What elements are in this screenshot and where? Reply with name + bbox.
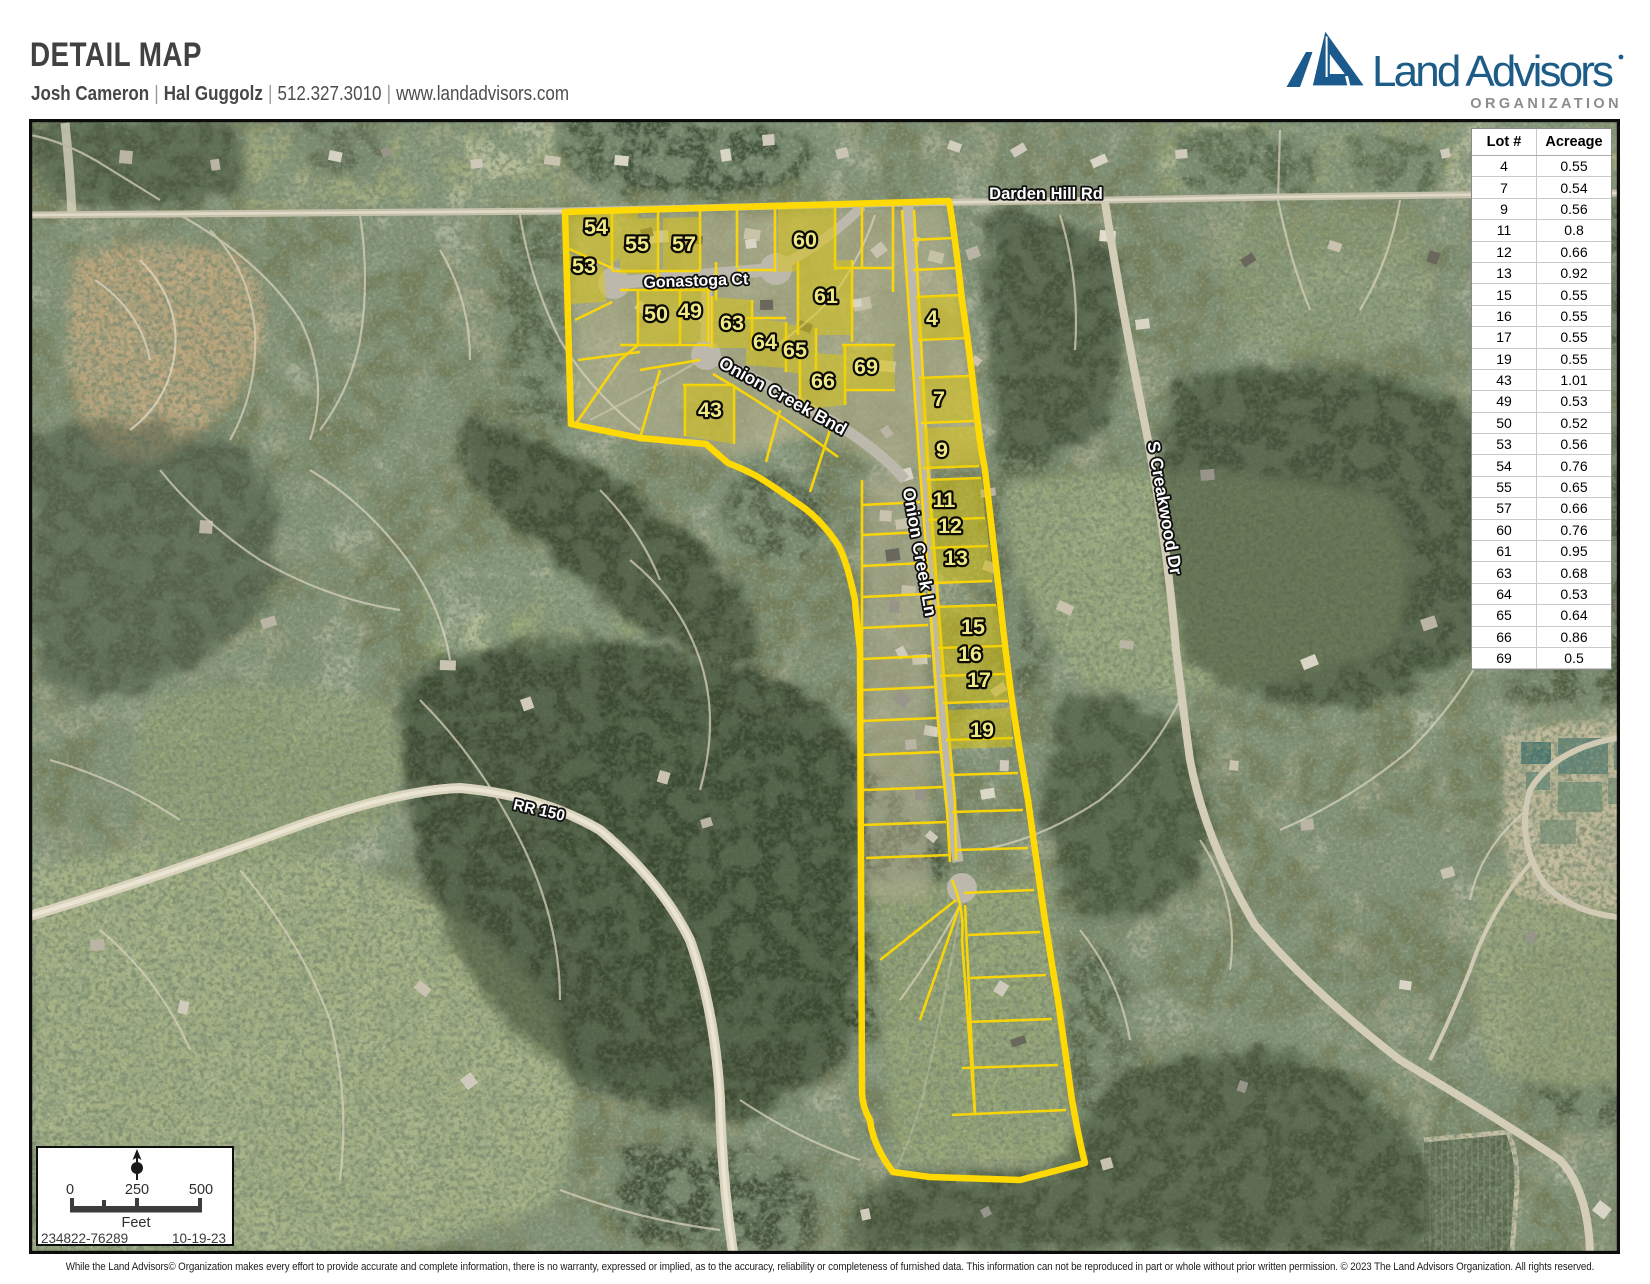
svg-text:Darden Hill Rd: Darden Hill Rd [989,185,1103,203]
svg-text:57: 57 [672,232,696,256]
svg-text:7: 7 [933,387,945,411]
svg-text:16: 16 [958,642,982,666]
svg-text:Land Advisors: Land Advisors [1372,47,1614,96]
svg-text:60: 60 [793,228,817,252]
svg-text:0: 0 [66,1182,74,1198]
svg-text:53: 53 [572,254,596,278]
svg-text:500: 500 [189,1182,213,1198]
svg-text:66: 66 [811,369,835,393]
svg-text:43: 43 [698,398,722,422]
svg-text:17: 17 [967,668,991,692]
svg-text:9: 9 [936,438,948,462]
svg-text:ORGANIZATION: ORGANIZATION [1470,96,1622,112]
svg-text:11: 11 [933,488,956,512]
svg-text:55: 55 [625,232,649,256]
svg-text:54: 54 [584,215,608,239]
svg-text:12: 12 [938,514,962,538]
svg-text:69: 69 [854,355,878,379]
svg-text:Feet: Feet [121,1215,150,1231]
svg-text:49: 49 [678,299,702,323]
svg-text:50: 50 [644,302,668,326]
svg-text:15: 15 [961,615,985,639]
svg-text:63: 63 [720,311,744,335]
svg-text:65: 65 [783,338,807,362]
svg-text:4: 4 [926,306,938,330]
svg-text:19: 19 [970,718,994,742]
svg-text:13: 13 [944,546,968,570]
svg-text:64: 64 [753,330,777,354]
svg-text:61: 61 [814,284,838,308]
svg-text:250: 250 [125,1182,149,1198]
